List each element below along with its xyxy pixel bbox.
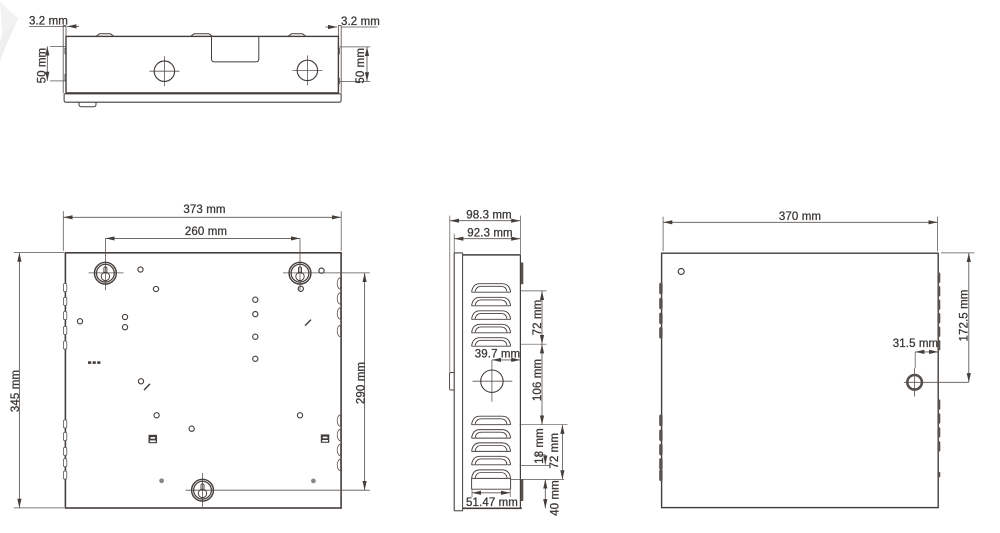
svg-text:92.3 mm: 92.3 mm [467, 227, 512, 239]
svg-text:50 mm: 50 mm [36, 48, 48, 84]
svg-text:370 mm: 370 mm [779, 211, 821, 223]
svg-text:3.2 mm: 3.2 mm [29, 16, 68, 28]
svg-text:31.5 mm: 31.5 mm [893, 338, 938, 350]
svg-text:172.5 mm: 172.5 mm [959, 290, 971, 342]
svg-text:72 mm: 72 mm [532, 300, 544, 336]
svg-text:3.2 mm: 3.2 mm [341, 16, 380, 28]
svg-text:290 mm: 290 mm [355, 362, 367, 404]
svg-text:50 mm: 50 mm [355, 48, 367, 84]
svg-text:72 mm: 72 mm [549, 433, 561, 469]
svg-text:345 mm: 345 mm [10, 370, 22, 412]
svg-text:260 mm: 260 mm [185, 226, 227, 238]
svg-text:106 mm: 106 mm [532, 359, 544, 401]
svg-text:51.47 mm: 51.47 mm [466, 497, 518, 509]
svg-text:40 mm: 40 mm [550, 480, 562, 516]
svg-text:98.3 mm: 98.3 mm [466, 209, 511, 221]
svg-text:39.7 mm: 39.7 mm [475, 348, 520, 360]
svg-text:373 mm: 373 mm [183, 204, 225, 216]
svg-text:18 mm: 18 mm [534, 428, 546, 464]
